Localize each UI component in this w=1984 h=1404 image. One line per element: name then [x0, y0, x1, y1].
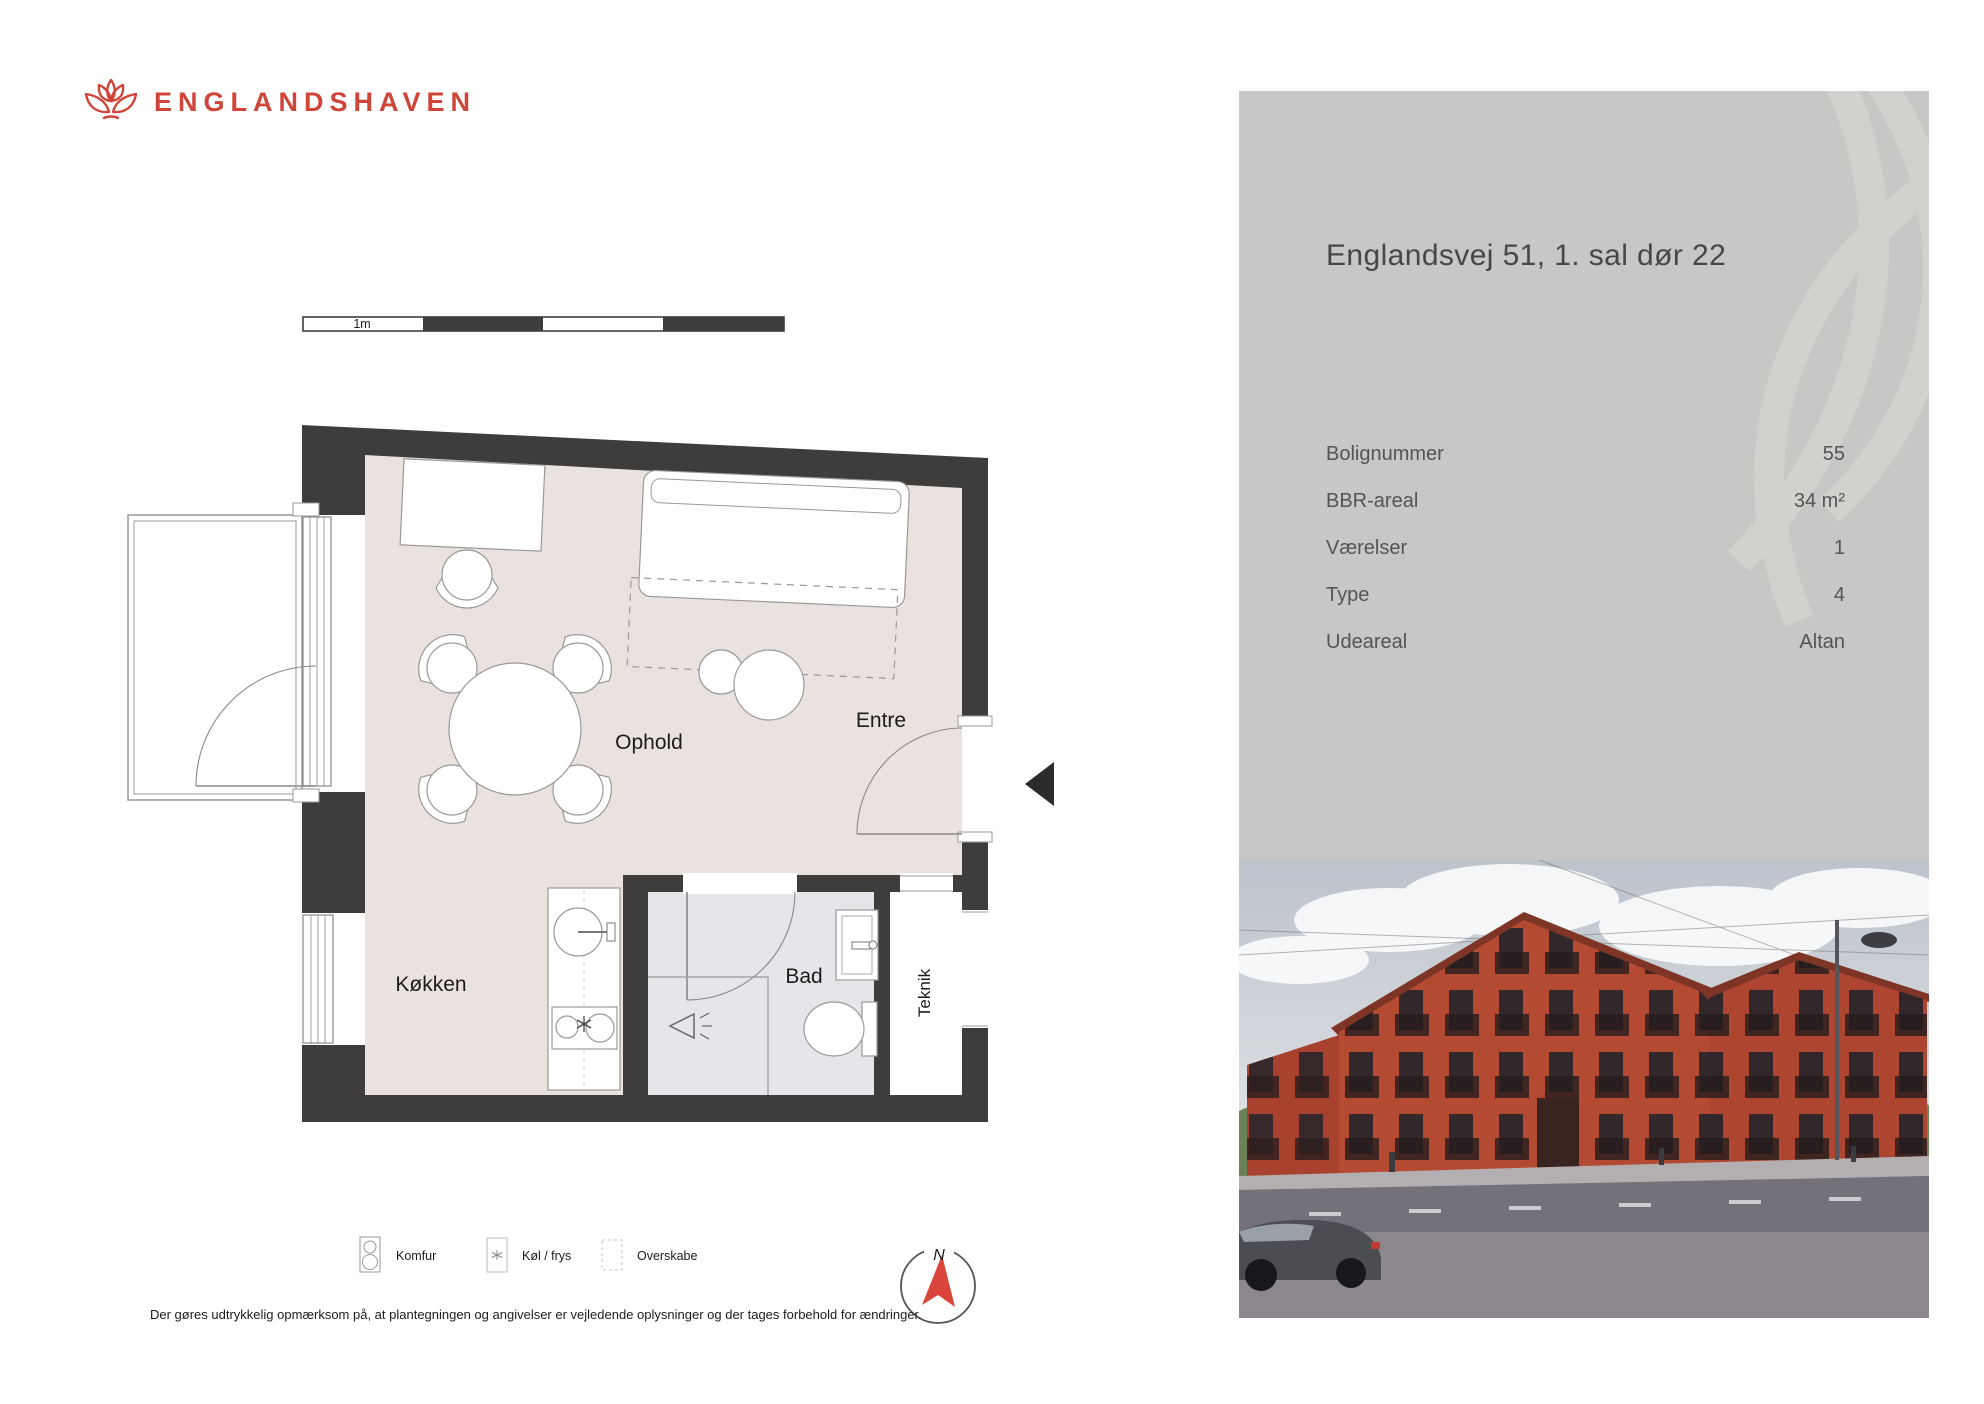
disclaimer-text: Der gøres udtrykkelig opmærksom på, at p… [150, 1307, 922, 1322]
info-panel: Englandsvej 51, 1. sal dør 22 Bolignumme… [1239, 91, 1929, 860]
desk [400, 459, 545, 551]
kitchen-counter [548, 888, 620, 1090]
info-label: BBR-areal [1326, 490, 1418, 513]
north-label: N [933, 1247, 945, 1264]
info-value: 34 m² [1794, 490, 1845, 513]
info-label: Bolignummer [1326, 443, 1444, 466]
room-label-bad: Bad [785, 965, 822, 988]
room-label-teknik: Teknik [915, 968, 934, 1017]
balcony-window [303, 517, 331, 786]
info-value: 4 [1834, 584, 1845, 607]
building-illustration [1239, 860, 1929, 1318]
info-label: Type [1326, 584, 1369, 607]
komfur-icon [360, 1237, 380, 1272]
info-row: BBR-areal 34 m² [1326, 478, 1845, 525]
overskabe-icon [602, 1240, 622, 1270]
legend-label-overskabe: Overskabe [637, 1249, 697, 1263]
bath-sink [836, 910, 878, 980]
scale-bar-label: 1m [353, 317, 370, 331]
panel-rows: Bolignummer 55 BBR-areal 34 m² Værelser … [1326, 431, 1845, 666]
info-value: 55 [1823, 443, 1845, 466]
legend: Komfur Køl / frys Overskabe [360, 1237, 697, 1272]
panel-title: Englandsvej 51, 1. sal dør 22 [1326, 239, 1726, 273]
legend-label-komfur: Komfur [396, 1249, 436, 1263]
info-row: Værelser 1 [1326, 525, 1845, 572]
floor-plan: 1m [0, 0, 1160, 1404]
room-label-kokken: Køkken [395, 973, 466, 996]
info-label: Udeareal [1326, 631, 1407, 654]
scale-bar: 1m [303, 317, 784, 331]
info-row: Udeareal Altan [1326, 619, 1845, 666]
balcony [128, 503, 319, 802]
room-label-ophold: Ophold [615, 731, 683, 754]
info-value: Altan [1799, 631, 1845, 654]
entrance-marker [1025, 762, 1054, 806]
info-row: Type 4 [1326, 572, 1845, 619]
legend-label-kol-frys: Køl / frys [522, 1249, 571, 1263]
building-photo [1239, 860, 1929, 1318]
toilet [804, 1002, 877, 1056]
kol-frys-icon [487, 1238, 507, 1272]
info-value: 1 [1834, 537, 1845, 560]
info-label: Værelser [1326, 537, 1407, 560]
kitchen-window [303, 915, 333, 1043]
side-table-large [734, 650, 804, 720]
room-label-entre: Entre [856, 709, 906, 732]
info-row: Bolignummer 55 [1326, 431, 1845, 478]
